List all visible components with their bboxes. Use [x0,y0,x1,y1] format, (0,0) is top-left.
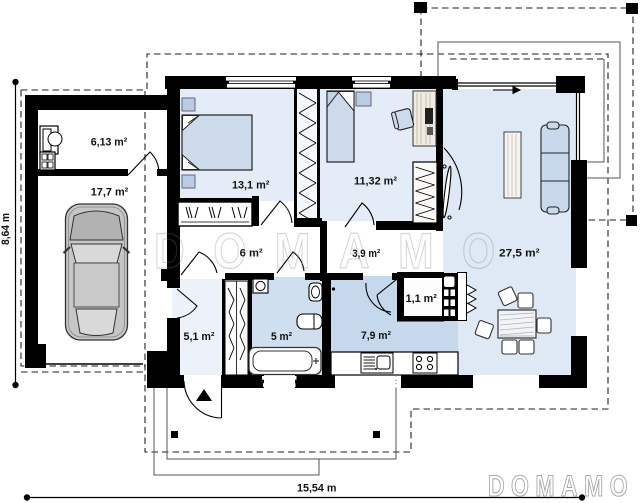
svg-text:5,1 m²: 5,1 m² [184,331,215,343]
svg-text:7,9 m²: 7,9 m² [361,330,391,342]
svg-text:17,7 m²: 17,7 m² [91,187,129,199]
svg-text:5 m²: 5 m² [271,331,292,343]
svg-text:1,1 m²: 1,1 m² [406,293,438,305]
svg-text:8,64 m: 8,64 m [0,213,12,245]
svg-text:6,13 m²: 6,13 m² [91,137,128,149]
svg-text:15,54 m: 15,54 m [297,483,337,495]
svg-text:DOMAMO: DOMAMO [488,469,634,502]
svg-text:DOMAMO: DOMAMO [154,223,524,279]
svg-text:11,32 m²: 11,32 m² [354,176,397,188]
svg-text:13,1 m²: 13,1 m² [232,179,270,191]
